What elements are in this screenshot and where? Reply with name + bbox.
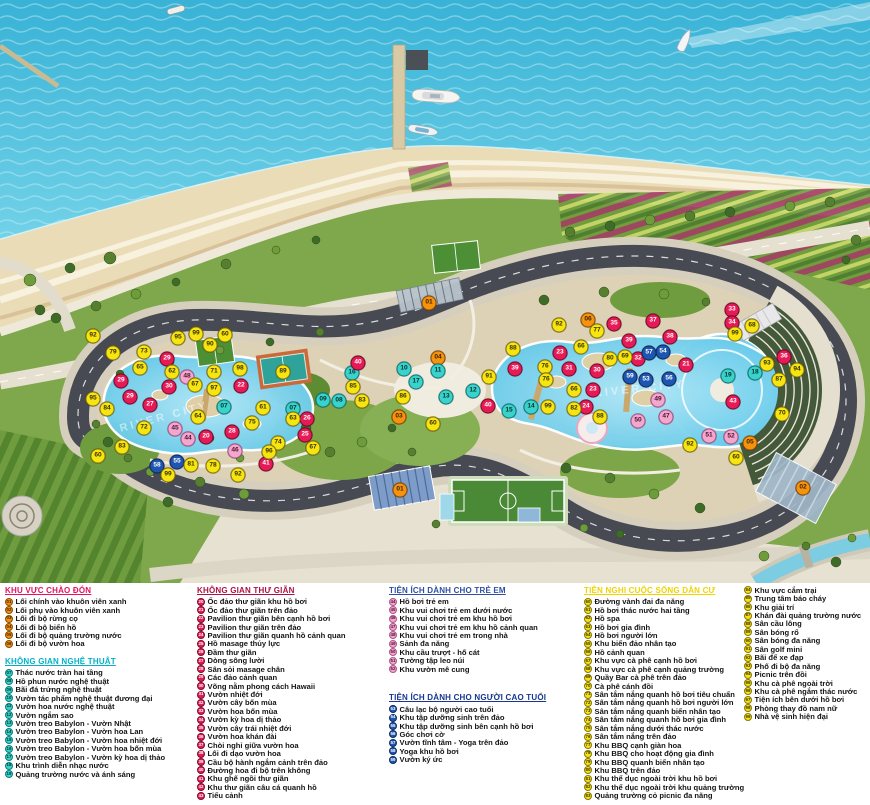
legend-item-label: Nhà vệ sinh hiện đại [755,712,828,721]
legend-section-title: KHÔNG GIAN THƯ GIÃN [197,586,385,595]
legend-item-number: 58 [389,747,397,755]
legend-section-kids: TIỆN ÍCH DÀNH CHO TRẺ EM44Hồ bơi trẻ em4… [389,586,579,673]
legend-column: KHÔNG GIAN THƯ GIÃN20Ốc đảo thư giãn khu… [197,586,385,800]
legend-item: 99Nhà vệ sinh hiện đại [744,713,868,721]
legend-item-number: 47 [389,623,397,631]
legend-item-number: 23 [197,623,205,631]
legend-item-number: 83 [584,792,592,800]
legend-item-number: 19 [5,770,13,778]
legend-item-number: 78 [584,750,592,758]
legend-item-number: 98 [744,704,752,712]
legend-item-number: 43 [197,792,205,800]
legend-item-number: 32 [197,699,205,707]
legend-item-number: 18 [5,762,13,770]
legend-item-number: 64 [584,631,592,639]
legend-item-number: 80 [584,766,592,774]
legend-item-number: 03 [5,615,13,623]
legend-item-number: 08 [5,677,13,685]
legend-item-number: 86 [744,603,752,611]
legend-item-number: 11 [5,703,13,711]
legend-item-number: 85 [744,595,752,603]
legend-item-number: 93 [744,662,752,670]
legend-item-number: 61 [584,606,592,614]
legend-item-number: 67 [584,657,592,665]
legend-item: 59Vườn ký ức [389,756,579,764]
legend-item-number: 60 [584,598,592,606]
legend-item-number: 89 [744,628,752,636]
legend-item-number: 95 [744,679,752,687]
master-plan-page: RIVER CITY RIVER CITY 010102030405060707… [0,0,870,805]
legend-item-number: 87 [744,612,752,620]
legend-item-number: 56 [389,730,397,738]
legend-item-number: 04 [5,623,13,631]
legend-item-number: 34 [197,716,205,724]
legend-item-number: 05 [5,631,13,639]
legend-item-number: 22 [197,615,205,623]
legend-item-number: 21 [197,606,205,614]
legend-item-number: 81 [584,775,592,783]
legend-item-number: 92 [744,654,752,662]
legend-item-label: Vườn ký ức [400,755,443,764]
legend-item: 06Lối đi bộ vườn hoa [5,640,193,648]
legend-item-number: 15 [5,736,13,744]
legend-item-number: 01 [5,598,13,606]
legend-item-number: 31 [197,691,205,699]
legend-item-number: 13 [5,719,13,727]
legend-item-number: 42 [197,783,205,791]
legend-item-label: Khu vườn mê cung [400,665,470,674]
legend-item-number: 41 [197,775,205,783]
legend-item: 19Quảng trường nước và ánh sáng [5,770,193,778]
legend-item-number: 75 [584,724,592,732]
legend: KHU VỰC CHÀO ĐÓN01Lối chính vào khuôn vi… [0,0,870,805]
legend-item-label: Lối đi bộ vườn hoa [16,639,85,648]
legend-item-number: 72 [584,699,592,707]
legend-item-number: 79 [584,758,592,766]
legend-item-number: 90 [744,637,752,645]
legend-item-number: 51 [389,657,397,665]
legend-item-number: 38 [197,750,205,758]
legend-section-title: TIỆN ÍCH DÀNH CHO NGƯỜI CAO TUỔI [389,693,579,702]
legend-item-number: 39 [197,758,205,766]
legend-section-relax: KHÔNG GIAN THƯ GIÃN20Ốc đảo thư giãn khu… [197,586,385,800]
legend-item-number: 49 [389,640,397,648]
legend-column: KHU VỰC CHÀO ĐÓN01Lối chính vào khuôn vi… [5,586,193,778]
legend-item-number: 68 [584,665,592,673]
legend-item-number: 53 [389,705,397,713]
legend-item: 43Tiểu cảnh [197,792,385,800]
legend-item-number: 76 [584,733,592,741]
legend-section-art: KHÔNG GIAN NGHỆ THUẬT07Thác nước tràn ha… [5,657,193,778]
legend-item-number: 62 [584,615,592,623]
legend-item-number: 17 [5,753,13,761]
legend-column: TIỆN NGHI CUỘC SỐNG DÂN CƯ60Đường vành đ… [584,586,740,800]
legend-section-elderly: TIỆN ÍCH DÀNH CHO NGƯỜI CAO TUỔI53Câu lạ… [389,693,579,764]
legend-item-number: 02 [5,606,13,614]
legend-item-number: 12 [5,711,13,719]
legend-item-number: 14 [5,728,13,736]
legend-item-number: 36 [197,733,205,741]
legend-item-number: 66 [584,648,592,656]
legend-item: 83Quảng trường cỏ picnic đa năng [584,792,740,800]
legend-item-number: 54 [389,714,397,722]
legend-item-number: 48 [389,631,397,639]
legend-item-number: 16 [5,745,13,753]
legend-item-number: 24 [197,631,205,639]
legend-item-number: 88 [744,620,752,628]
legend-item-number: 46 [389,615,397,623]
legend-item: 52Khu vườn mê cung [389,665,579,673]
legend-item-number: 82 [584,783,592,791]
legend-item-number: 29 [197,674,205,682]
legend-item-number: 57 [389,739,397,747]
legend-item-number: 09 [5,686,13,694]
legend-item-number: 35 [197,724,205,732]
legend-section-title: TIỆN NGHI CUỘC SỐNG DÂN CƯ [584,586,740,595]
legend-item-number: 27 [197,657,205,665]
legend-item-number: 40 [197,766,205,774]
legend-item-number: 50 [389,648,397,656]
legend-item-number: 55 [389,722,397,730]
legend-item-number: 25 [197,640,205,648]
legend-item-number: 52 [389,665,397,673]
legend-item-number: 07 [5,669,13,677]
legend-item-number: 99 [744,713,752,721]
legend-item-number: 10 [5,694,13,702]
legend-item-number: 65 [584,640,592,648]
legend-item-number: 96 [744,687,752,695]
legend-section-title: TIỆN ÍCH DÀNH CHO TRẺ EM [389,586,579,595]
legend-item-number: 30 [197,682,205,690]
legend-item-number: 45 [389,606,397,614]
legend-item-number: 63 [584,623,592,631]
legend-item-number: 33 [197,707,205,715]
legend-item-number: 28 [197,665,205,673]
legend-item-number: 44 [389,598,397,606]
legend-item-number: 26 [197,648,205,656]
legend-item-number: 71 [584,691,592,699]
legend-item-number: 70 [584,682,592,690]
legend-item-label: Quảng trường nước và ánh sáng [16,770,136,779]
legend-item-number: 77 [584,741,592,749]
legend-item-number: 69 [584,674,592,682]
legend-item-number: 73 [584,707,592,715]
legend-item-number: 59 [389,756,397,764]
legend-section-title: KHU VỰC CHÀO ĐÓN [5,586,193,595]
legend-column: TIỆN ÍCH DÀNH CHO TRẺ EM44Hồ bơi trẻ em4… [389,586,579,764]
legend-item-number: 97 [744,696,752,704]
legend-column: 84Khu vực cắm trại85Trung tâm báo cháy86… [744,586,868,721]
legend-section-community: TIỆN NGHI CUỘC SỐNG DÂN CƯ60Đường vành đ… [584,586,740,800]
legend-item-number: 37 [197,741,205,749]
legend-item-number: 20 [197,598,205,606]
legend-item-number: 84 [744,586,752,594]
legend-section-title: KHÔNG GIAN NGHỆ THUẬT [5,657,193,666]
legend-section-community2: 84Khu vực cắm trại85Trung tâm báo cháy86… [744,586,868,721]
legend-item-number: 06 [5,640,13,648]
legend-item-number: 74 [584,716,592,724]
legend-item-number: 94 [744,671,752,679]
legend-item-number: 91 [744,645,752,653]
legend-item-label: Tiểu cảnh [208,791,243,800]
legend-item-label: Quảng trường cỏ picnic đa năng [595,791,713,800]
legend-section-welcome: KHU VỰC CHÀO ĐÓN01Lối chính vào khuôn vi… [5,586,193,648]
